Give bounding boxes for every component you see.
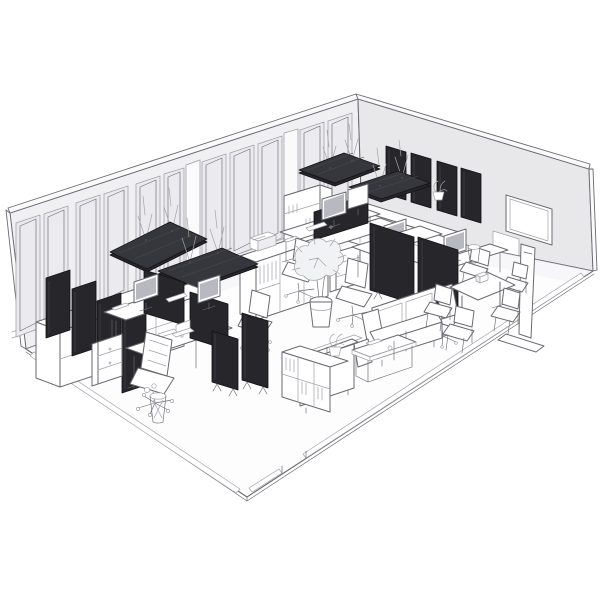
- cup: [388, 346, 392, 350]
- crumpled-paper: [152, 384, 156, 388]
- office-floorplan-illustration: Open-plan office interior rendering with…: [0, 0, 600, 600]
- floor-screen-3: [370, 223, 414, 304]
- leaning-panel-1: [46, 270, 70, 338]
- floor-screen-1: [212, 331, 238, 390]
- crumpled-paper: [144, 387, 149, 392]
- isometric-office-scene: Open-plan office interior rendering with…: [0, 0, 600, 600]
- floor-screen-2: [242, 313, 268, 388]
